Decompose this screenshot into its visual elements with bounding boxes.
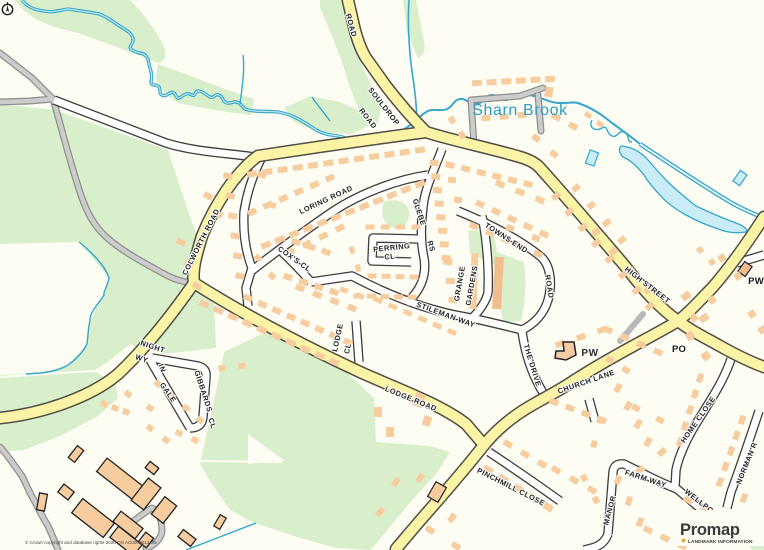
svg-text:© Crown copyright and database: © Crown copyright and database rights 20… xyxy=(25,539,157,545)
svg-text:PW: PW xyxy=(748,276,764,287)
svg-text:CL: CL xyxy=(384,251,396,261)
svg-text:Promap: Promap xyxy=(680,521,740,539)
svg-text:Sharn Brook: Sharn Brook xyxy=(472,102,568,119)
svg-text:PO: PO xyxy=(672,344,686,355)
svg-text:LANDMARK INFORMATION: LANDMARK INFORMATION xyxy=(688,539,753,545)
svg-text:PW: PW xyxy=(581,348,598,359)
